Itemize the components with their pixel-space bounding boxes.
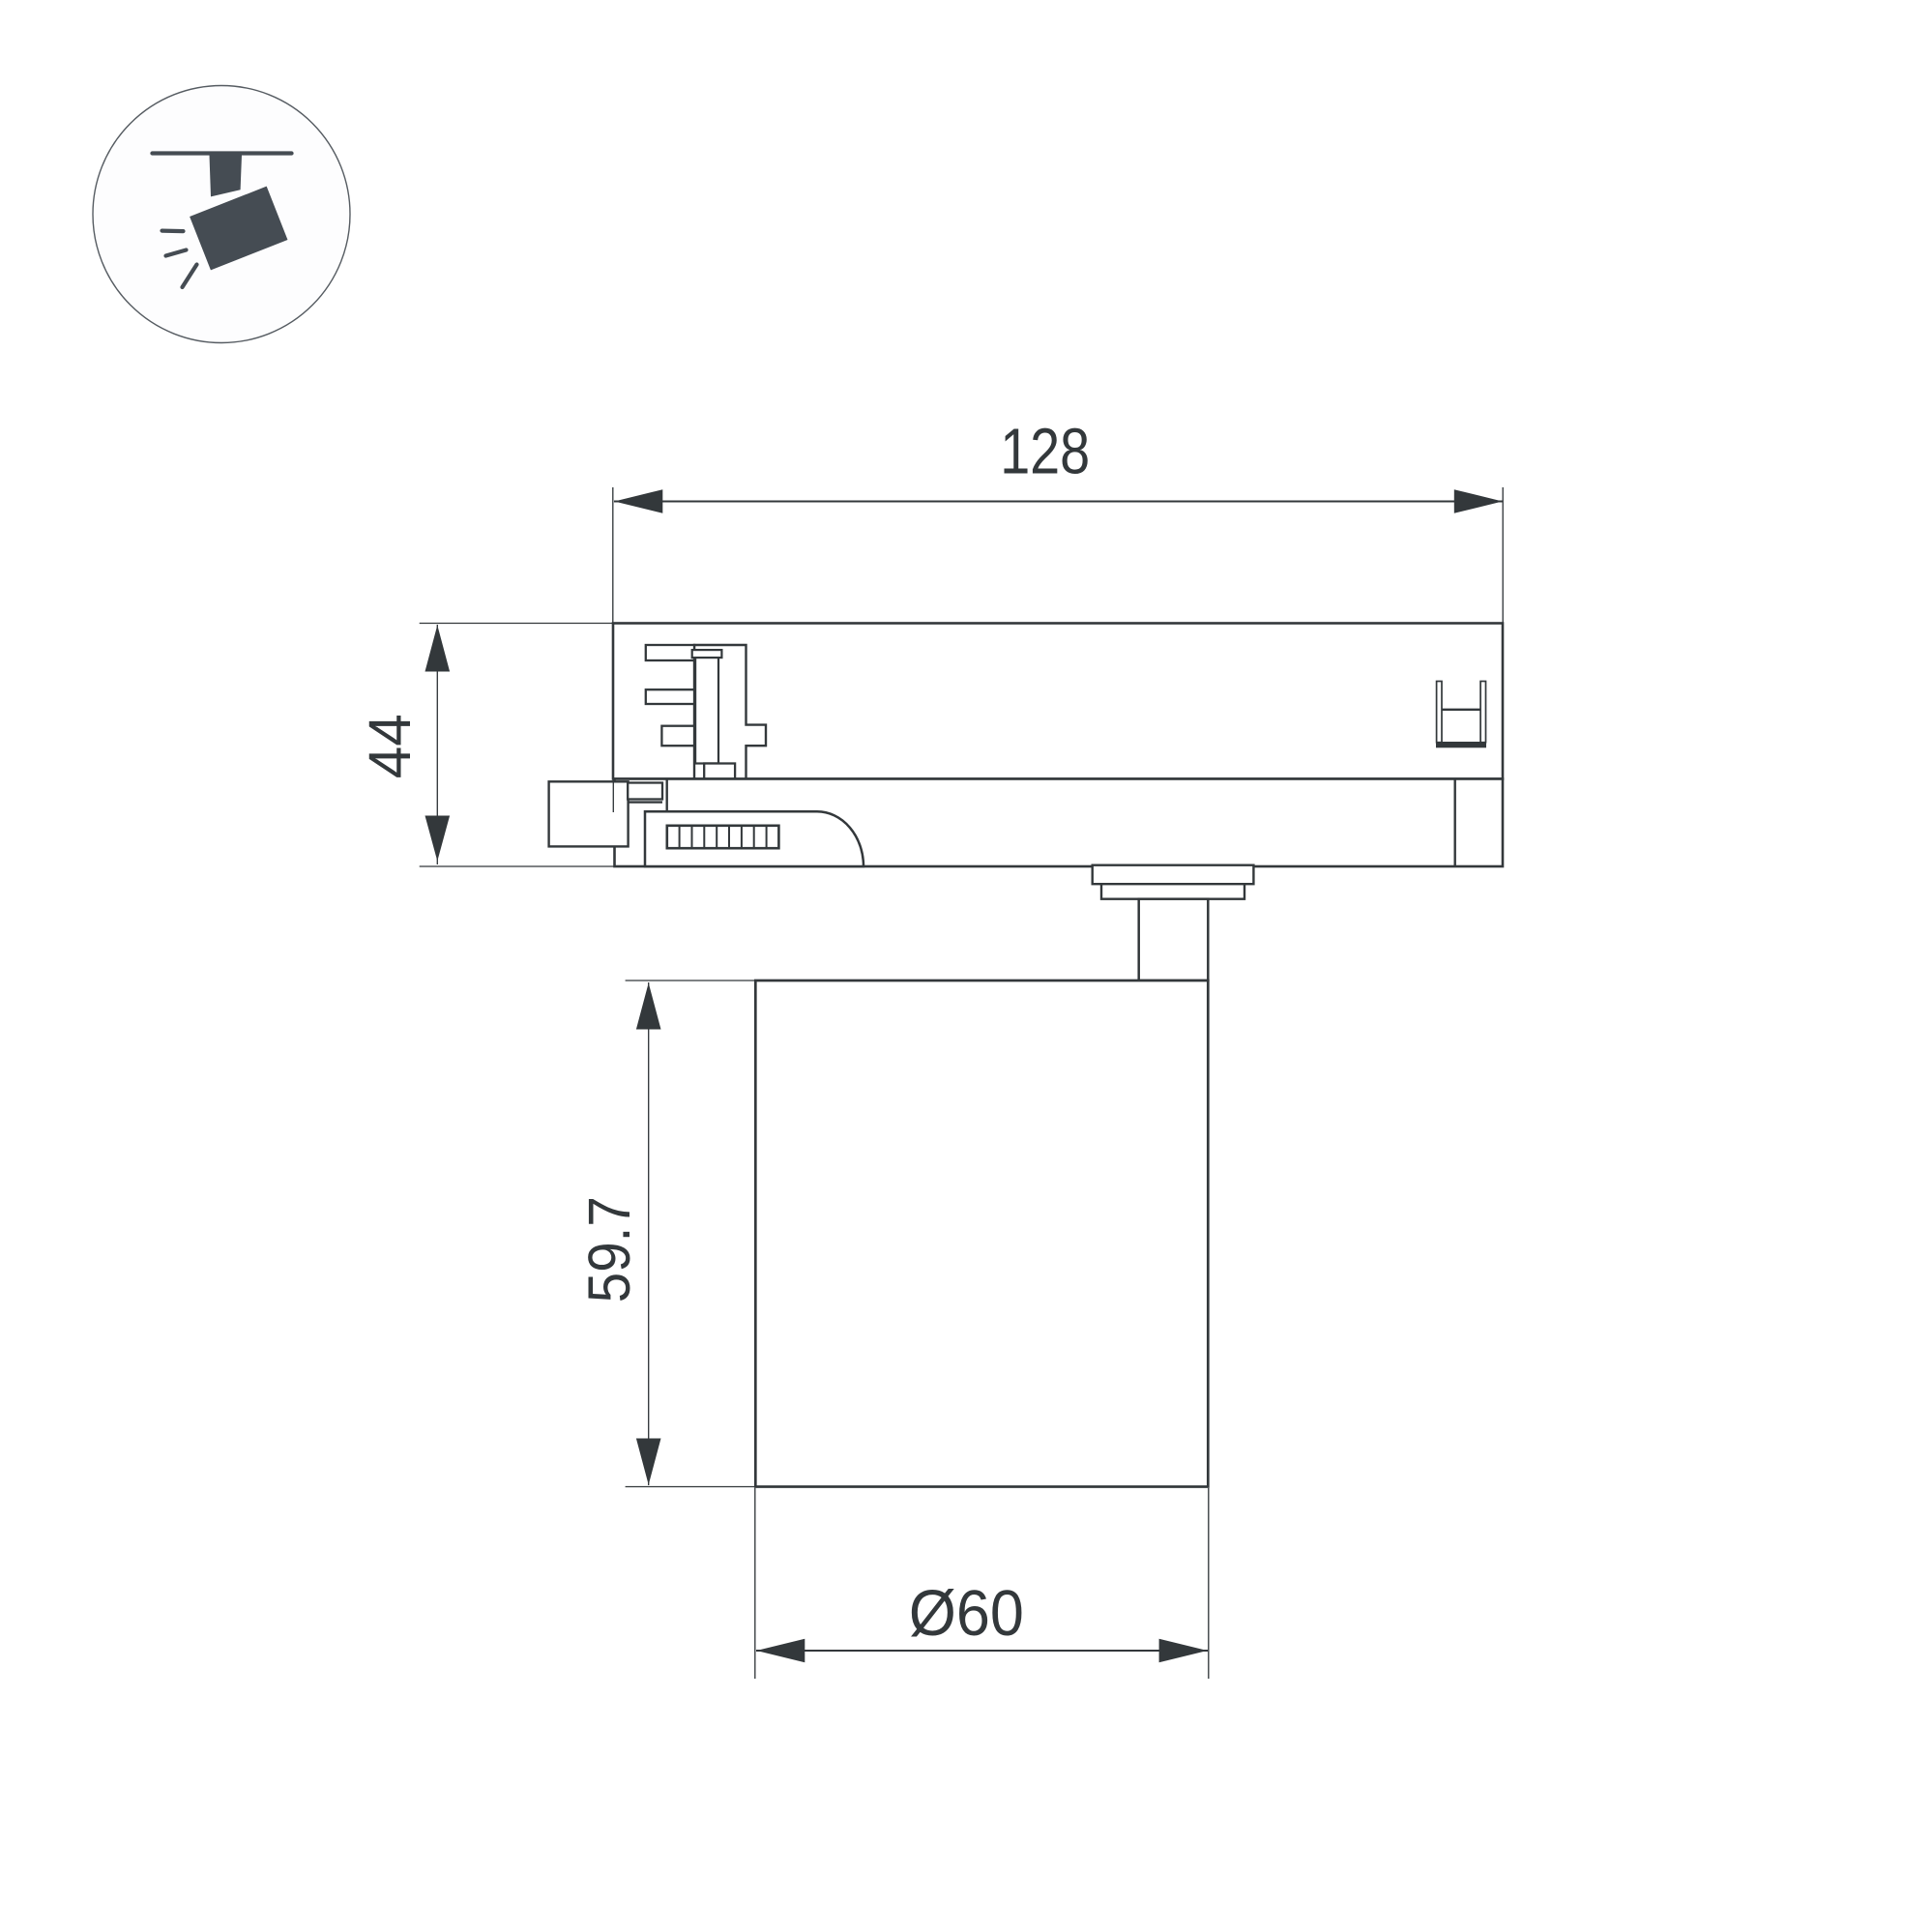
svg-text:59.7: 59.7 xyxy=(576,1196,642,1303)
svg-text:128: 128 xyxy=(1000,416,1090,488)
svg-text:Ø60: Ø60 xyxy=(909,1577,1024,1650)
svg-text:44: 44 xyxy=(357,714,423,778)
